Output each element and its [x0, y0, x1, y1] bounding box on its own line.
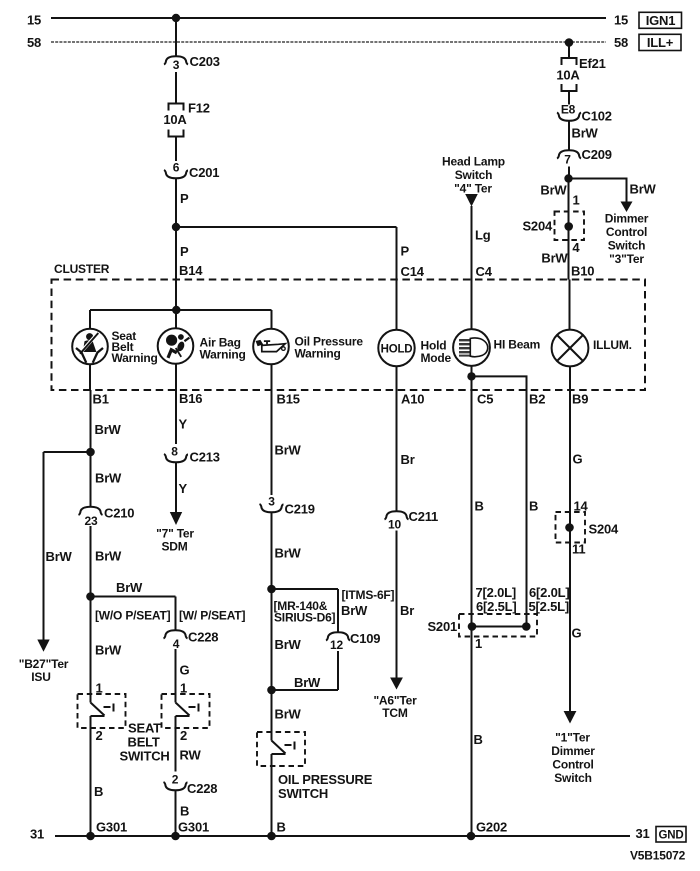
- svg-text:C219: C219: [285, 502, 315, 517]
- svg-text:HOLD: HOLD: [381, 344, 413, 356]
- svg-text:G: G: [180, 663, 190, 678]
- svg-text:Warning: Warning: [112, 351, 158, 365]
- svg-text:BrW: BrW: [540, 183, 567, 198]
- svg-text:10: 10: [388, 518, 401, 532]
- svg-text:Y: Y: [179, 481, 188, 496]
- svg-text:B: B: [475, 499, 484, 514]
- svg-text:B1: B1: [93, 392, 109, 407]
- svg-text:BrW: BrW: [294, 675, 321, 690]
- svg-text:2: 2: [96, 728, 103, 743]
- svg-text:7[2.0L]: 7[2.0L]: [476, 585, 517, 600]
- svg-text:OIL PRESSURE: OIL PRESSURE: [278, 772, 373, 787]
- svg-text:HI Beam: HI Beam: [494, 338, 541, 352]
- svg-text:7: 7: [564, 153, 571, 167]
- svg-text:B9: B9: [572, 392, 588, 407]
- svg-text:CLUSTER: CLUSTER: [54, 262, 110, 276]
- svg-text:Switch: Switch: [608, 239, 645, 253]
- svg-text:58: 58: [27, 35, 41, 50]
- svg-text:B15: B15: [277, 392, 300, 407]
- svg-text:SWITCH: SWITCH: [120, 749, 170, 764]
- svg-text:B14: B14: [179, 263, 203, 278]
- svg-text:B10: B10: [571, 264, 594, 279]
- svg-text:BrW: BrW: [95, 471, 122, 486]
- svg-text:10A: 10A: [556, 68, 580, 83]
- svg-text:12: 12: [330, 638, 343, 652]
- svg-text:BrW: BrW: [46, 549, 73, 564]
- svg-text:SDM: SDM: [161, 540, 187, 554]
- svg-text:C211: C211: [409, 509, 439, 524]
- svg-text:"4" Ter: "4" Ter: [454, 182, 492, 196]
- svg-text:Dimmer: Dimmer: [605, 212, 649, 226]
- svg-text:[ITMS-6F]: [ITMS-6F]: [342, 588, 395, 602]
- svg-text:"7" Ter: "7" Ter: [156, 527, 194, 541]
- svg-text:3: 3: [268, 495, 275, 509]
- svg-text:3: 3: [173, 58, 180, 72]
- svg-text:"3"Ter: "3"Ter: [609, 252, 644, 266]
- svg-text:S201: S201: [427, 619, 457, 634]
- svg-text:Y: Y: [179, 417, 188, 432]
- svg-text:C5: C5: [477, 392, 493, 407]
- svg-text:G301: G301: [178, 820, 209, 835]
- svg-text:8: 8: [171, 445, 178, 459]
- svg-text:BrW: BrW: [95, 549, 122, 564]
- svg-text:1: 1: [475, 636, 482, 651]
- svg-text:C209: C209: [582, 147, 612, 162]
- svg-text:15: 15: [614, 13, 628, 28]
- svg-text:B2: B2: [529, 392, 545, 407]
- svg-text:Br: Br: [401, 452, 415, 467]
- svg-text:S204: S204: [522, 219, 553, 234]
- svg-text:TCM: TCM: [382, 706, 408, 720]
- svg-text:SEAT: SEAT: [128, 721, 161, 736]
- svg-text:C14: C14: [401, 264, 425, 279]
- svg-text:ILLUM.: ILLUM.: [593, 338, 632, 352]
- svg-text:C201: C201: [189, 165, 219, 180]
- svg-text:Head Lamp: Head Lamp: [442, 155, 505, 169]
- svg-text:"1"Ter: "1"Ter: [555, 731, 590, 745]
- svg-text:1: 1: [573, 193, 580, 208]
- svg-text:F12: F12: [188, 101, 210, 116]
- svg-text:4: 4: [173, 637, 180, 651]
- svg-text:B: B: [180, 804, 189, 819]
- svg-text:6: 6: [173, 161, 180, 175]
- svg-text:58: 58: [614, 35, 628, 50]
- svg-text:SIRIUS-D6]: SIRIUS-D6]: [274, 611, 336, 625]
- svg-text:B: B: [529, 499, 538, 514]
- svg-text:31: 31: [636, 826, 650, 841]
- svg-text:31: 31: [30, 827, 44, 842]
- svg-text:RW: RW: [180, 748, 202, 763]
- svg-text:15: 15: [27, 13, 41, 28]
- svg-text:S204: S204: [589, 522, 620, 537]
- svg-text:[W/ P/SEAT]: [W/ P/SEAT]: [179, 609, 245, 623]
- svg-text:C210: C210: [104, 506, 134, 521]
- svg-text:5[2.5L]: 5[2.5L]: [529, 599, 570, 614]
- svg-text:Control: Control: [606, 225, 647, 239]
- svg-text:A10: A10: [401, 392, 424, 407]
- svg-text:P: P: [180, 244, 189, 259]
- svg-text:B: B: [474, 732, 483, 747]
- svg-text:"B27"Ter: "B27"Ter: [19, 657, 69, 671]
- svg-text:C213: C213: [190, 450, 220, 465]
- svg-text:BrW: BrW: [275, 546, 302, 561]
- svg-text:Warning: Warning: [200, 348, 246, 362]
- svg-text:C109: C109: [350, 631, 380, 646]
- svg-text:11: 11: [572, 542, 585, 557]
- svg-text:G: G: [573, 452, 583, 467]
- svg-text:Mode: Mode: [421, 351, 452, 365]
- svg-text:C203: C203: [190, 54, 220, 69]
- svg-text:BrW: BrW: [572, 126, 599, 141]
- svg-text:Control: Control: [552, 758, 593, 772]
- svg-text:2: 2: [172, 773, 179, 787]
- svg-text:GND: GND: [659, 830, 684, 842]
- svg-text:BrW: BrW: [541, 251, 568, 266]
- svg-text:Lg: Lg: [475, 228, 491, 243]
- svg-text:BrW: BrW: [116, 580, 143, 595]
- svg-text:P: P: [401, 244, 410, 259]
- svg-text:Dimmer: Dimmer: [551, 744, 595, 758]
- svg-text:Warning: Warning: [295, 347, 341, 361]
- svg-text:BrW: BrW: [275, 707, 302, 722]
- svg-text:[W/O P/SEAT]: [W/O P/SEAT]: [95, 609, 171, 623]
- svg-text:2: 2: [180, 728, 187, 743]
- svg-text:6[2.0L]: 6[2.0L]: [529, 585, 570, 600]
- svg-text:BrW: BrW: [630, 182, 657, 197]
- svg-text:BELT: BELT: [128, 735, 160, 750]
- svg-text:6[2.5L]: 6[2.5L]: [476, 599, 517, 614]
- svg-text:BrW: BrW: [341, 603, 368, 618]
- svg-text:C228: C228: [188, 630, 218, 645]
- svg-text:C228: C228: [187, 781, 217, 796]
- svg-text:G202: G202: [476, 820, 507, 835]
- svg-text:ISU: ISU: [31, 670, 50, 684]
- svg-text:Br: Br: [400, 603, 414, 618]
- svg-text:SWITCH: SWITCH: [278, 786, 328, 801]
- svg-text:P: P: [180, 191, 189, 206]
- svg-text:10A: 10A: [163, 112, 187, 127]
- svg-text:BrW: BrW: [95, 422, 122, 437]
- svg-text:BrW: BrW: [95, 643, 122, 658]
- svg-text:G301: G301: [96, 820, 127, 835]
- svg-text:23: 23: [85, 514, 98, 528]
- svg-text:BrW: BrW: [275, 637, 302, 652]
- svg-text:Switch: Switch: [455, 168, 492, 182]
- svg-text:IGN1: IGN1: [646, 13, 676, 28]
- svg-text:V5B15072: V5B15072: [630, 849, 686, 863]
- svg-text:BrW: BrW: [275, 443, 302, 458]
- svg-text:E8: E8: [561, 103, 576, 117]
- svg-text:4: 4: [572, 240, 580, 255]
- svg-text:C4: C4: [476, 264, 493, 279]
- svg-text:B16: B16: [179, 391, 202, 406]
- svg-text:G: G: [572, 626, 582, 641]
- svg-text:C102: C102: [582, 109, 612, 124]
- svg-text:B: B: [277, 820, 286, 835]
- svg-text:ILL+: ILL+: [647, 35, 674, 50]
- svg-text:B: B: [94, 784, 103, 799]
- svg-text:Ef21: Ef21: [579, 56, 606, 71]
- svg-text:Switch: Switch: [554, 771, 591, 785]
